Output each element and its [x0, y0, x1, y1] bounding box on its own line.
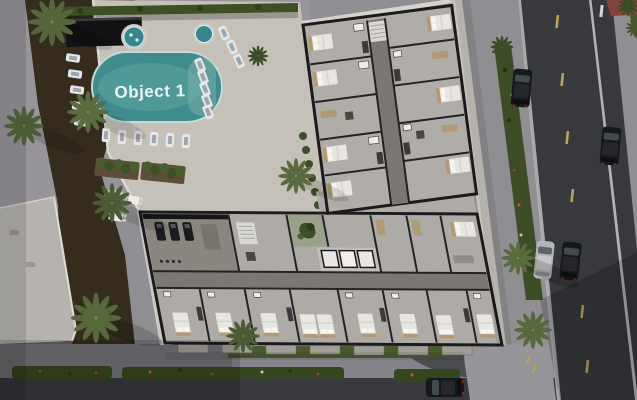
car	[510, 68, 532, 108]
north-wing-floorplan	[303, 5, 477, 213]
apartment-bed	[312, 69, 338, 87]
car	[426, 378, 464, 397]
apartment-bed	[322, 144, 348, 162]
site-render: Object 1	[0, 0, 637, 400]
dining-table	[416, 130, 425, 139]
elevator-bank	[317, 247, 382, 271]
apartment-bed	[426, 14, 452, 32]
dining-table	[246, 252, 257, 261]
corridor	[153, 271, 489, 290]
apartment-bed	[445, 157, 471, 175]
courtyard-garden	[286, 215, 328, 247]
jacuzzi	[121, 24, 147, 50]
car	[599, 126, 621, 166]
south-wing-floorplan	[136, 190, 502, 345]
apartment-bed	[435, 85, 461, 103]
pool: Object 1	[92, 52, 222, 122]
dining-table	[345, 111, 354, 120]
apartment-bed	[308, 33, 334, 51]
sofa	[453, 255, 475, 263]
jacuzzi	[193, 23, 215, 45]
corner-plaza	[462, 344, 556, 400]
aerial-render-canvas: Object 1	[0, 0, 637, 400]
apartment-bed	[450, 222, 477, 237]
pool-brand-label: Object 1	[114, 81, 186, 102]
